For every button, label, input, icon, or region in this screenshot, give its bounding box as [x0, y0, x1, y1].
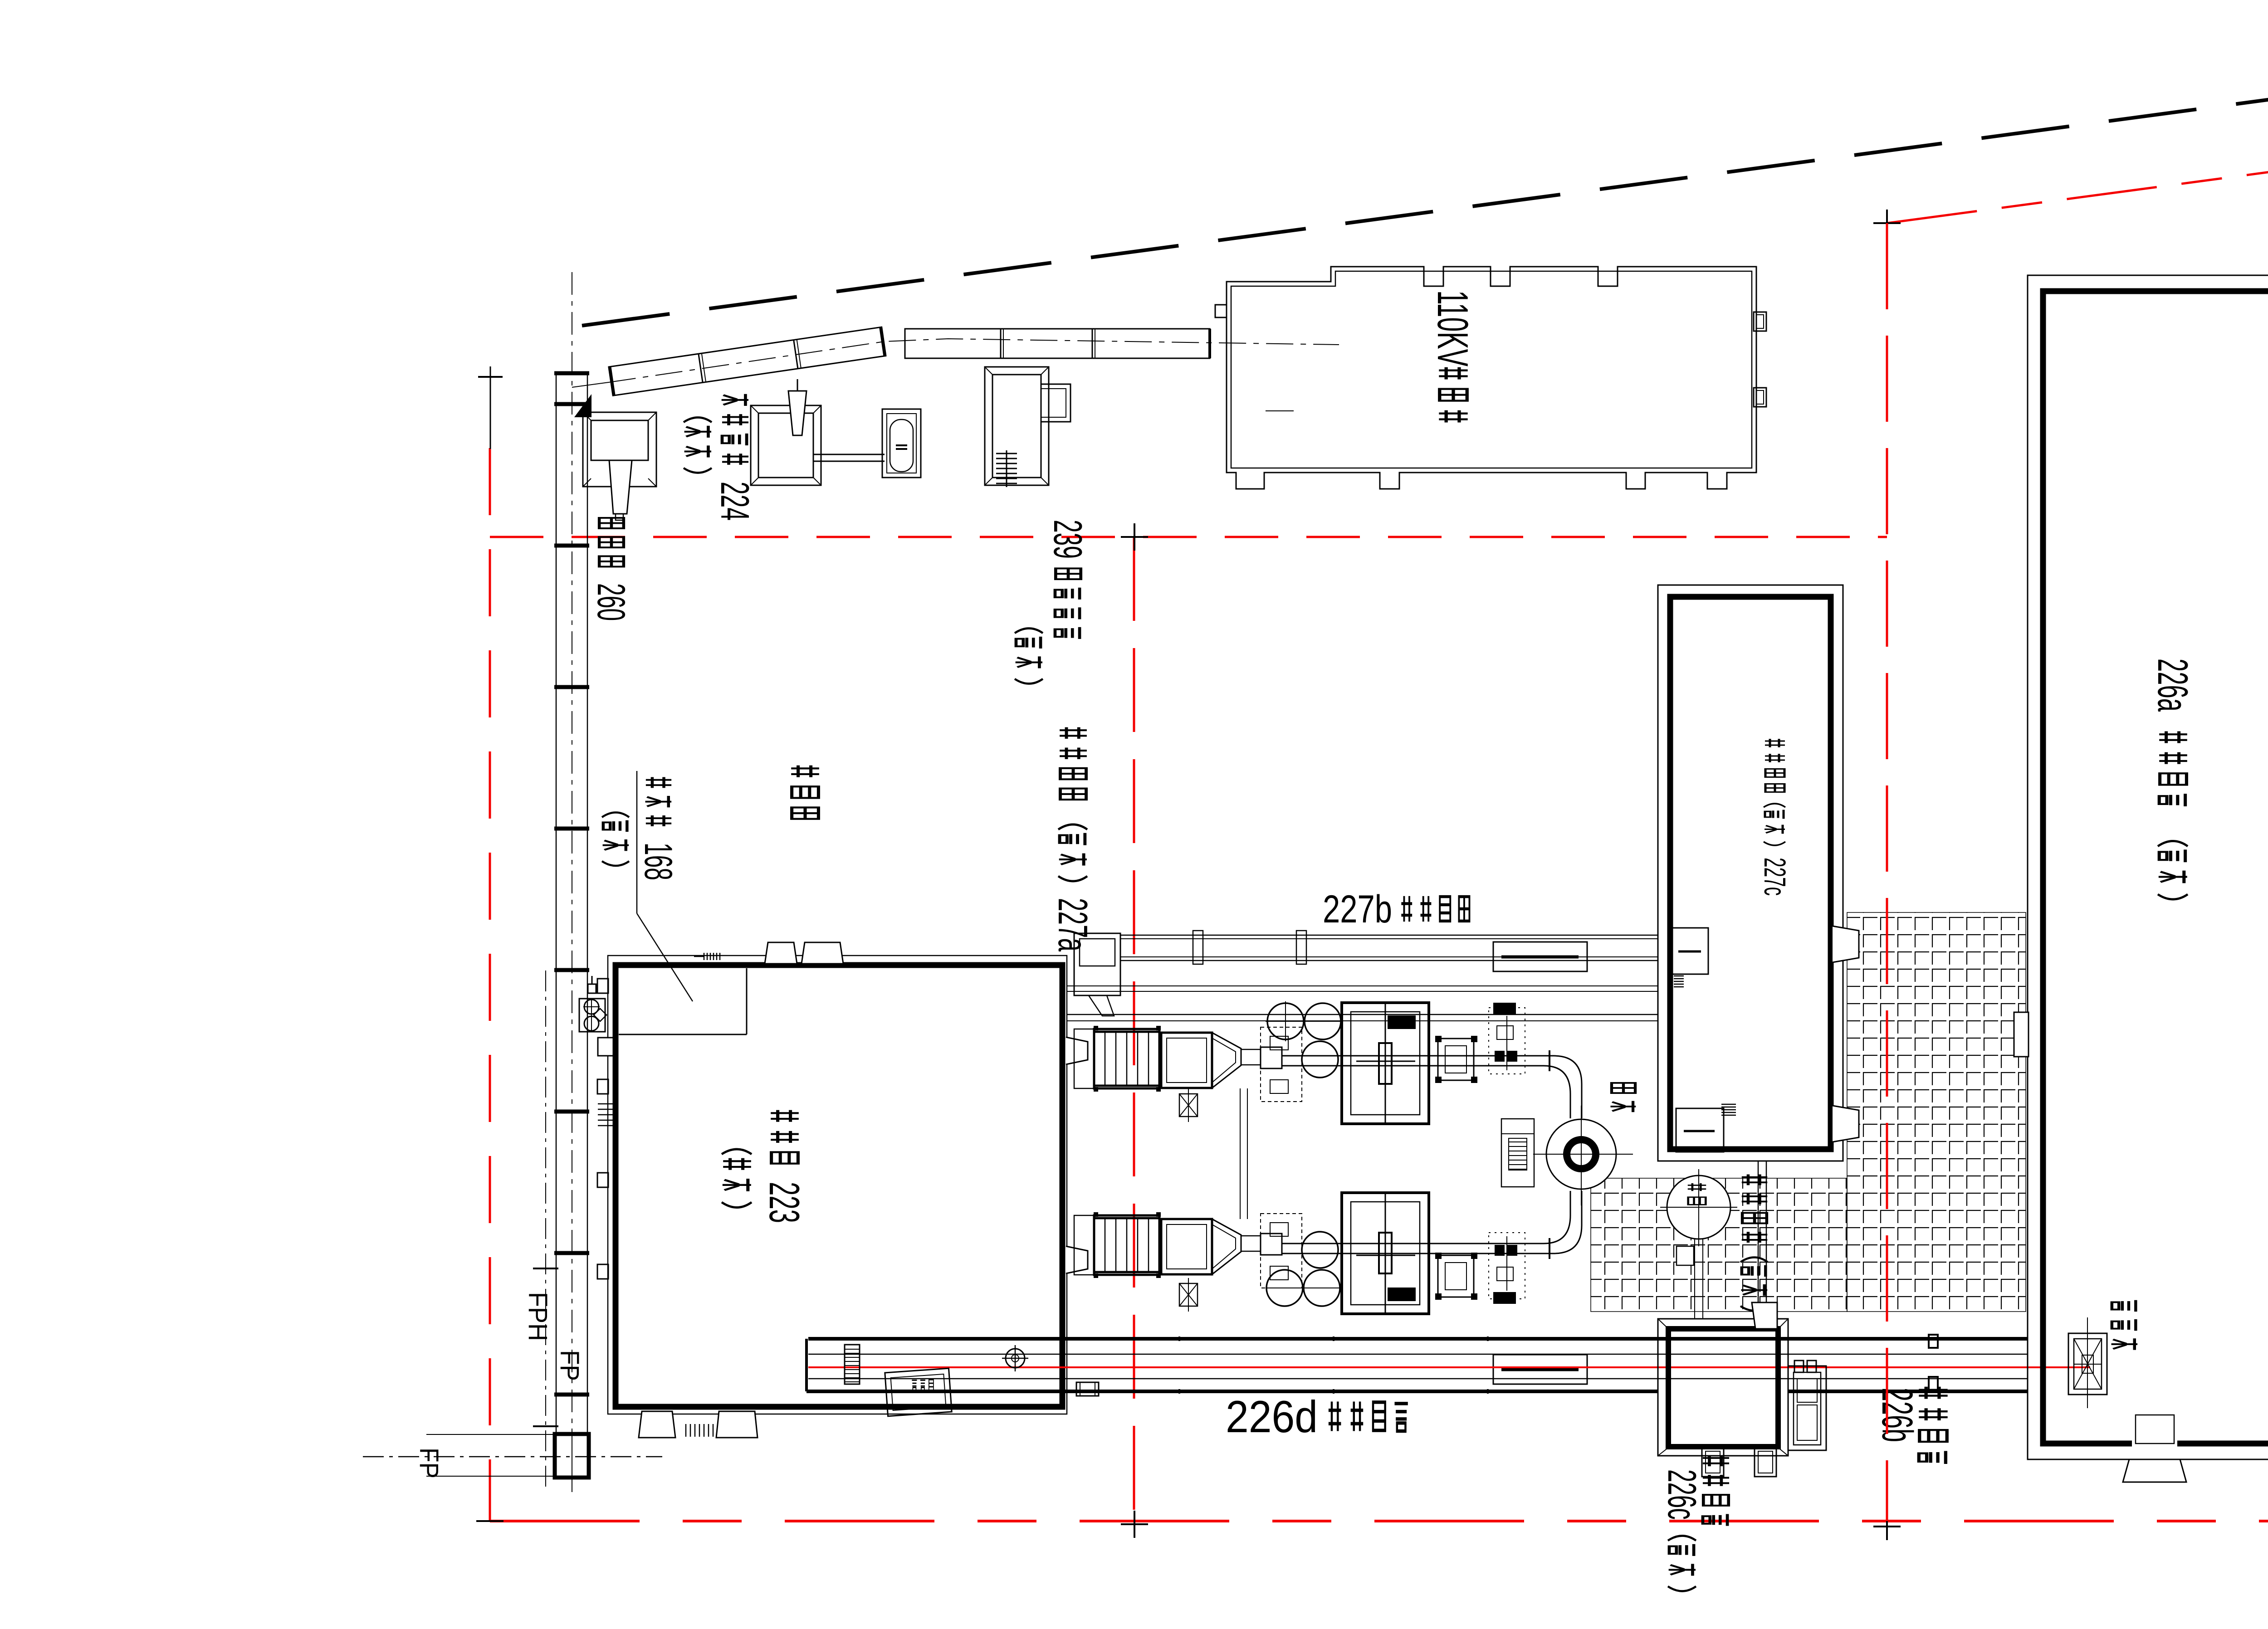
- svg-text:227a: 227a: [1050, 898, 1095, 951]
- svg-text:226a: 226a: [2149, 658, 2197, 712]
- svg-text:224: 224: [713, 482, 758, 521]
- svg-text:FP: FP: [414, 1448, 444, 1478]
- svg-text:FPH: FPH: [523, 1292, 552, 1341]
- svg-text:227b: 227b: [1323, 888, 1392, 931]
- svg-text:168: 168: [636, 843, 680, 880]
- svg-text:226d: 226d: [1226, 1391, 1318, 1442]
- svg-text:260: 260: [589, 583, 633, 621]
- svg-text:227c: 227c: [1758, 858, 1792, 896]
- svg-text:FP: FP: [555, 1350, 584, 1381]
- svg-text:223: 223: [761, 1182, 808, 1223]
- svg-text:239: 239: [1046, 520, 1090, 559]
- svg-text:226b: 226b: [1873, 1388, 1921, 1442]
- svg-text:226c: 226c: [1660, 1469, 1705, 1520]
- svg-text:110KV: 110KV: [1428, 290, 1477, 366]
